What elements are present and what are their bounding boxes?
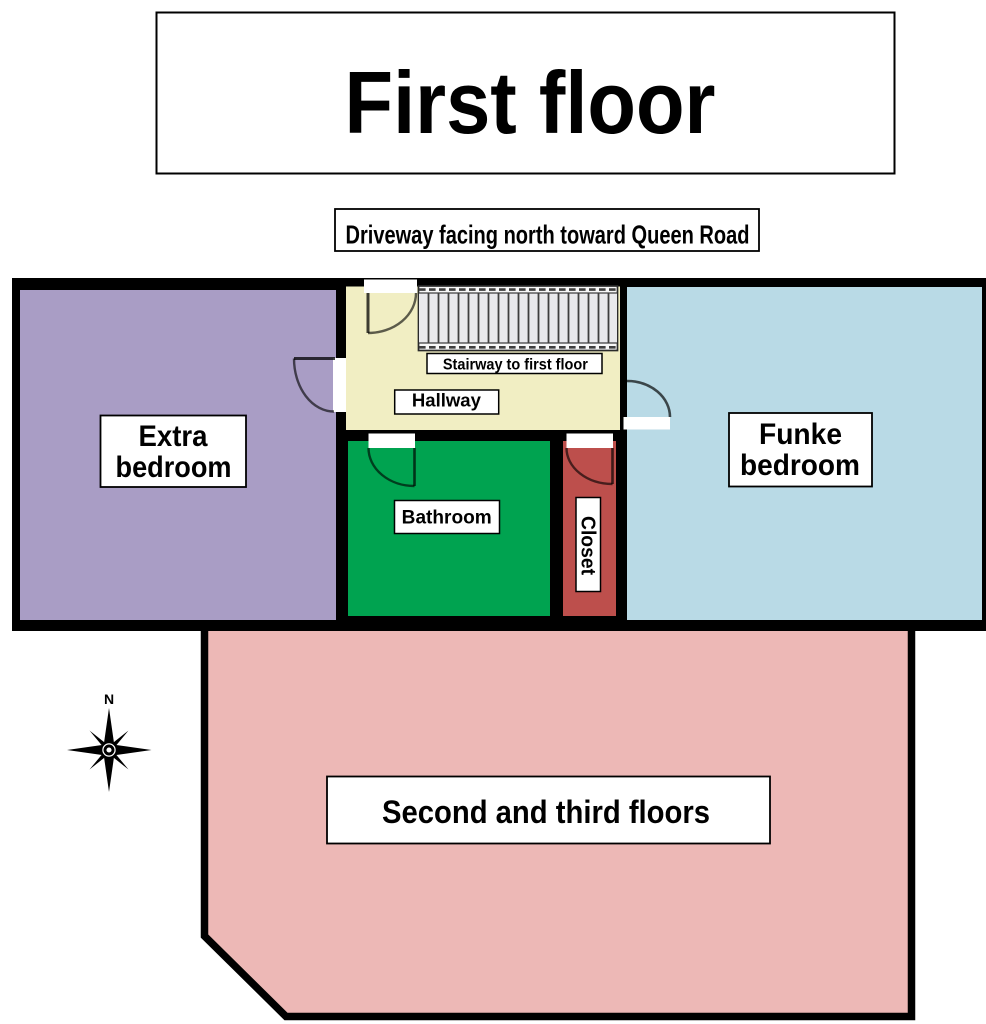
svg-text:Driveway facing north toward Q: Driveway facing north toward Queen Road [346,220,750,250]
svg-text:Bathroom: Bathroom [402,508,492,529]
svg-text:Second and third floors: Second and third floors [382,794,710,830]
svg-text:Closet: Closet [577,516,599,575]
svg-text:First floor: First floor [345,53,716,152]
svg-text:bedroom: bedroom [740,449,860,482]
svg-text:Funke: Funke [759,418,842,451]
svg-text:N: N [104,691,114,707]
svg-text:Hallway: Hallway [412,390,482,411]
svg-text:Stairway to first floor: Stairway to first floor [443,357,588,374]
svg-text:Extra: Extra [139,420,209,453]
svg-text:bedroom: bedroom [116,451,232,484]
